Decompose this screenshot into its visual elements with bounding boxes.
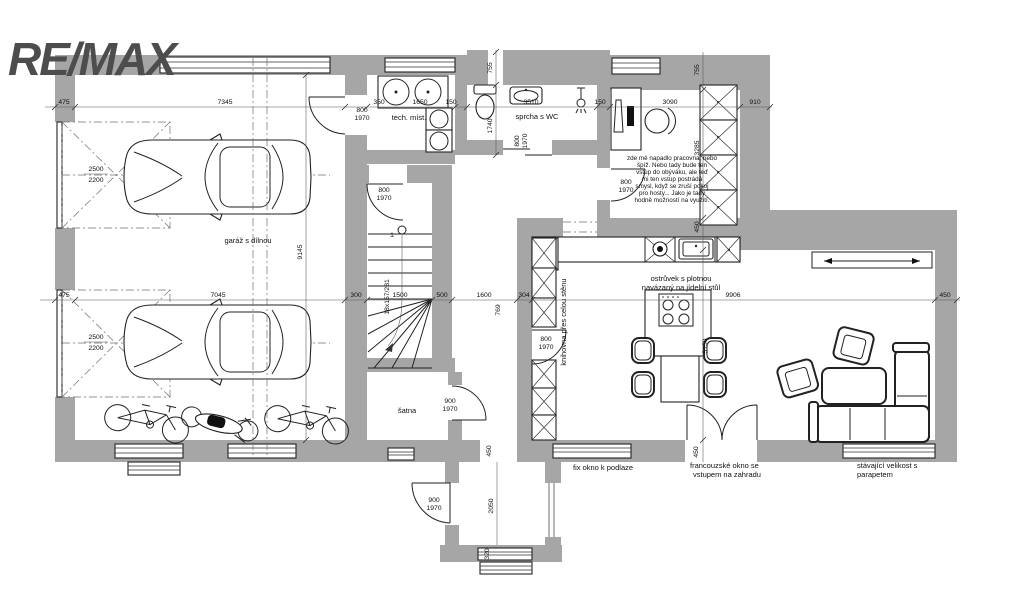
svg-text:pro hosty... Jako je tady: pro hosty... Jako je tady: [639, 190, 706, 197]
dim-304: 304: [518, 292, 530, 299]
dim-320: 320: [484, 548, 491, 560]
armchair-1: [832, 326, 875, 366]
dim-3090: 3090: [662, 99, 677, 106]
label-island-2: navázaný na jídelní stůl: [642, 283, 721, 292]
dim-garage-door1-h: 2200: [88, 177, 103, 184]
svg-text:mi ten vstup postrádá: mi ten vstup postrádá: [642, 176, 703, 183]
fridge: [717, 237, 740, 262]
dim-garage-door2-h: 2200: [88, 345, 103, 352]
garage-top-window: [160, 57, 330, 73]
dim-door-living-h: 1970: [538, 344, 553, 351]
dim-door-tech-w: 800: [356, 107, 368, 114]
stair-step-1: 1: [390, 232, 394, 239]
label-garage: garáž s dílnou: [224, 236, 271, 245]
toilet: [474, 85, 496, 119]
dim-1650: 1650: [412, 99, 427, 106]
dim-door-living-w: 800: [540, 336, 552, 343]
desk: [611, 88, 641, 150]
dim-3510: 3510: [523, 99, 538, 106]
shower-head-icon: [576, 88, 586, 113]
door-garage-tech: [309, 97, 345, 134]
label-tech-room: tech. míst.: [392, 113, 427, 122]
dim-door-closet-h: 1970: [442, 406, 457, 413]
dim-769: 769: [495, 304, 502, 316]
car-1: [124, 134, 311, 220]
dim-door-tech-h: 1970: [354, 115, 369, 122]
fix-window: [553, 444, 631, 458]
remax-logo: RE/MAX: [8, 33, 179, 85]
label-existing-1: stávající velikost s: [857, 461, 918, 470]
dim-450-right: 450: [939, 292, 951, 299]
label-existing-2: parapetem: [857, 470, 893, 479]
dim-450-french: 450: [693, 446, 700, 458]
dim-9906: 9906: [725, 292, 740, 299]
dim-7345: 7345: [217, 99, 232, 106]
dim-9145: 9145: [297, 244, 304, 259]
dim-garage-door2-w: 2500: [88, 334, 103, 341]
svg-text:hodně možností na využití.: hodně možností na využití.: [635, 197, 710, 204]
kitchen-counter: [532, 237, 740, 270]
svg-text:zde mě napadlo pracovna, nebo: zde mě napadlo pracovna, nebo: [627, 155, 717, 162]
garage-bottom-window-2: [228, 444, 296, 458]
dim-350: 350: [373, 99, 385, 106]
light-well: [128, 462, 180, 475]
dim-5150: 5150: [702, 338, 709, 353]
coffee-table: [822, 368, 886, 404]
dim-1500: 1500: [392, 292, 407, 299]
bicycle-1: [102, 393, 192, 445]
dim-450-kitchen: 450: [694, 221, 701, 233]
dim-300: 300: [350, 292, 362, 299]
label-french-2: vstupem na zahradu: [693, 470, 761, 479]
dim-stairs: 18x157/281: [384, 279, 391, 315]
label-fix-window: fix okno k podlaze: [573, 463, 633, 472]
existing-window: [843, 444, 935, 458]
office-chair: [645, 108, 676, 134]
garage-door-panel-2: [57, 290, 62, 397]
label-island-1: ostrůvek s plotnou: [651, 274, 712, 283]
dim-450-closet: 450: [486, 445, 493, 457]
dim-1740: 1740: [487, 118, 494, 133]
armchair-2: [776, 358, 819, 399]
label-library: knihovna přes celou stěnu: [559, 278, 568, 365]
dim-3285: 3285: [694, 140, 701, 155]
floor-plan: 475 7345 350 1650 150 3510 150 3090 910 …: [0, 0, 1024, 615]
motorcycle: [179, 403, 260, 445]
garage-bottom-window-1: [115, 444, 183, 458]
tech-room-window: [385, 58, 455, 72]
dim-door-vestibule-h: 1970: [426, 505, 441, 512]
svg-text:špíž. Nebo tady bude ten: špíž. Nebo tady bude ten: [637, 162, 708, 169]
dim-door-stairs-w: 800: [378, 187, 390, 194]
car-2: [124, 299, 311, 385]
svg-text:vstup do obýváku, ale teď: vstup do obýváku, ale teď: [636, 169, 708, 176]
dim-910: 910: [749, 99, 761, 106]
dim-door-office-w: 800: [620, 179, 632, 186]
dim-sliding-door: 800 1970: [514, 133, 529, 148]
garage-door-panel-1: [57, 122, 62, 228]
office-window: [612, 58, 660, 74]
boiler-units: [426, 108, 452, 152]
label-bathroom: sprcha s WC: [516, 112, 560, 121]
dim-755-a: 755: [487, 62, 494, 74]
closet-window: [388, 448, 414, 460]
dim-755-b: 755: [694, 64, 701, 76]
vestibule-side-window: [545, 483, 561, 537]
svg-text:800: 800: [514, 135, 521, 147]
svg-text:1970: 1970: [522, 133, 529, 148]
dim-door-stairs-h: 1970: [376, 195, 391, 202]
label-closet: šatna: [398, 406, 417, 415]
axis-lines: [253, 58, 267, 458]
tv-sideboard: [812, 252, 932, 268]
dining-table: [661, 356, 699, 402]
french-door: [687, 405, 757, 440]
dim-door-vestibule-w: 900: [428, 497, 440, 504]
dim-475-top: 475: [58, 99, 70, 106]
dim-475-left: 475: [58, 292, 70, 299]
dim-door-office-h: 1970: [618, 187, 633, 194]
dim-2050: 2050: [488, 498, 495, 513]
label-french-1: francouzské okno se: [690, 461, 759, 470]
svg-text:smysl, když se zruší pokoj: smysl, když se zruší pokoj: [635, 183, 708, 190]
dim-7045: 7045: [210, 292, 225, 299]
dim-garage-door1-w: 2500: [88, 166, 103, 173]
kitchen-sink: [679, 239, 713, 259]
dim-150-a: 150: [445, 99, 457, 106]
dim-500: 500: [436, 292, 448, 299]
dim-door-closet-w: 900: [444, 398, 456, 405]
dim-150-b: 150: [594, 99, 606, 106]
dim-1600: 1600: [476, 292, 491, 299]
